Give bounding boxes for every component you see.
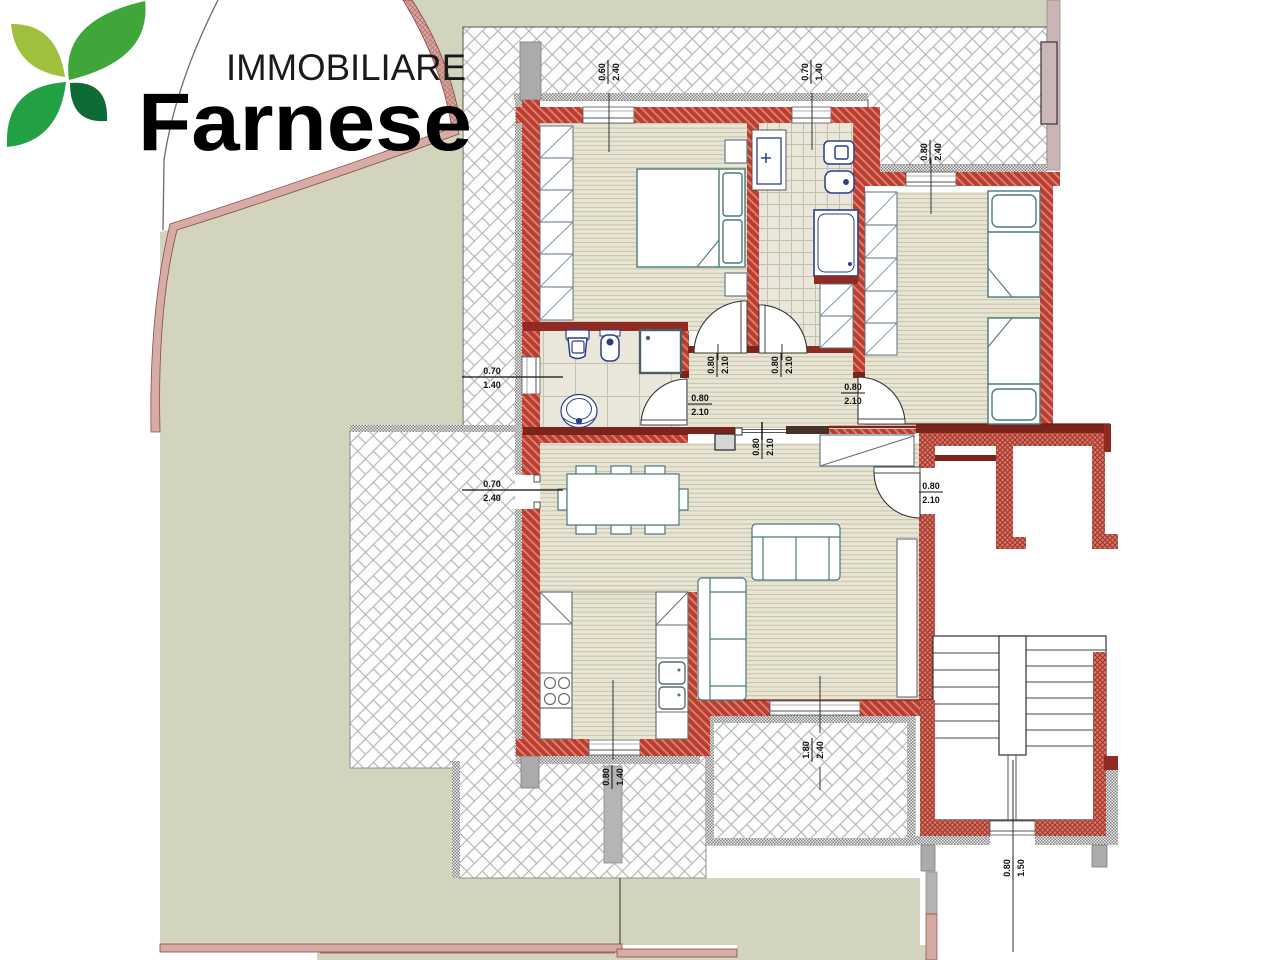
svg-text:2.10: 2.10: [844, 396, 862, 406]
svg-text:0.70: 0.70: [483, 479, 501, 489]
svg-text:0.80: 0.80: [922, 481, 940, 491]
svg-text:1.40: 1.40: [615, 768, 625, 786]
svg-text:2.10: 2.10: [720, 356, 730, 374]
svg-text:1.40: 1.40: [814, 63, 824, 81]
svg-text:0.80: 0.80: [751, 438, 761, 456]
svg-text:0.80: 0.80: [706, 356, 716, 374]
svg-text:0.70: 0.70: [800, 63, 810, 81]
svg-text:0.80: 0.80: [691, 393, 709, 403]
svg-text:2.10: 2.10: [784, 356, 794, 374]
svg-text:2.10: 2.10: [691, 407, 709, 417]
svg-text:0.80: 0.80: [770, 356, 780, 374]
svg-text:1.50: 1.50: [1016, 859, 1026, 877]
svg-text:2.40: 2.40: [815, 741, 825, 759]
svg-text:0.80: 0.80: [1002, 859, 1012, 877]
svg-text:0.80: 0.80: [601, 768, 611, 786]
svg-text:2.10: 2.10: [765, 438, 775, 456]
svg-text:0.70: 0.70: [483, 366, 501, 376]
svg-text:0.80: 0.80: [844, 382, 862, 392]
svg-text:0.80: 0.80: [919, 143, 929, 161]
svg-text:1.80: 1.80: [801, 741, 811, 759]
svg-text:2.10: 2.10: [922, 495, 940, 505]
svg-text:2.40: 2.40: [483, 493, 501, 503]
svg-text:1.40: 1.40: [483, 380, 501, 390]
svg-text:2.40: 2.40: [933, 143, 943, 161]
svg-text:2.40: 2.40: [611, 63, 621, 81]
svg-text:0.60: 0.60: [597, 63, 607, 81]
svg-text:Farnese: Farnese: [138, 77, 472, 168]
